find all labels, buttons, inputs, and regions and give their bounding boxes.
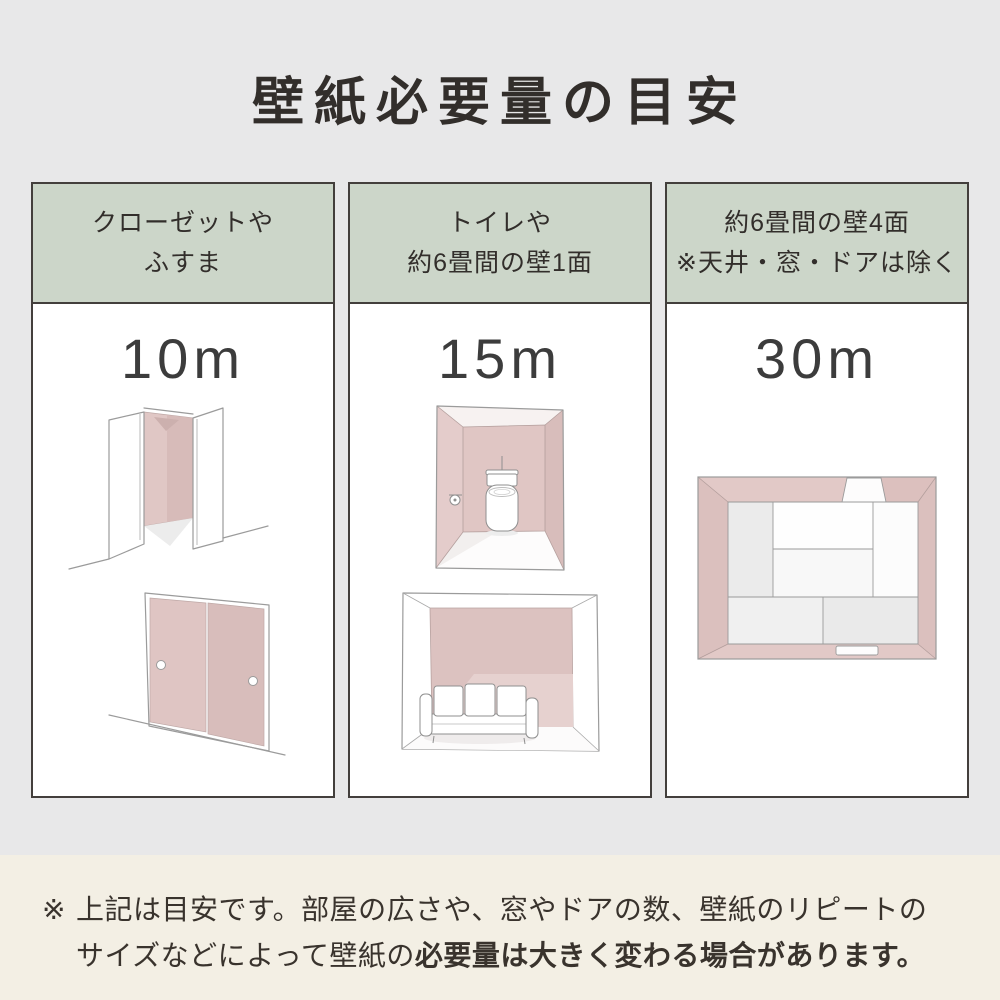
- column-header: トイレや 約6畳間の壁1面: [350, 184, 650, 304]
- note-band: ※ 上記は目安です。部屋の広さや、窓やドアの数、壁紙のリピートのサイズなどによっ…: [0, 855, 1000, 1000]
- fusuma-sliding-doors-illustration: [102, 580, 292, 760]
- header-line-2: ※天井・窓・ドアは除く: [676, 243, 958, 283]
- column-body: 10m: [33, 304, 333, 796]
- header-line-2: ふすま: [144, 243, 222, 283]
- column-toilet-one-wall: トイレや 約6畳間の壁1面 15m: [348, 182, 652, 798]
- note-text: 上記は目安です。部屋の広さや、窓やドアの数、壁紙のリピートのサイズなどによって壁…: [76, 887, 980, 979]
- room-one-accent-wall-sofa-illustration: [400, 590, 600, 754]
- header-line-1: トイレや: [448, 203, 552, 243]
- amount-value: 10m: [121, 328, 245, 390]
- note-mark: ※: [42, 887, 66, 933]
- note-line-2-bold: 必要量は大きく変わる場合があります。: [415, 940, 925, 971]
- amount-value: 30m: [755, 328, 879, 390]
- header-line-1: 約6畳間の壁4面: [724, 203, 910, 243]
- column-header: 約6畳間の壁4面 ※天井・窓・ドアは除く: [667, 184, 967, 304]
- toilet-room-illustration: [435, 404, 565, 572]
- note: ※ 上記は目安です。部屋の広さや、窓やドアの数、壁紙のリピートのサイズなどによっ…: [0, 855, 1000, 979]
- note-line-2-regular: サイズなどによって壁紙の: [76, 940, 415, 971]
- column-body: 15m: [350, 304, 650, 796]
- wallpaper-amount-guide: 壁紙必要量の目安 クローゼットや ふすま 10m: [0, 0, 1000, 1000]
- column-closet-fusuma: クローゼットや ふすま 10m: [31, 182, 335, 798]
- header-line-1: クローゼットや: [92, 203, 274, 243]
- tatami-room-top-view-illustration: [697, 476, 937, 660]
- estimate-table: クローゼットや ふすま 10m: [31, 182, 969, 798]
- amount-value: 15m: [438, 328, 562, 390]
- column-four-walls: 約6畳間の壁4面 ※天井・窓・ドアは除く 30m: [665, 182, 969, 798]
- page-title: 壁紙必要量の目安: [0, 60, 1000, 135]
- note-line-1: 上記は目安です。部屋の広さや、窓やドアの数、壁紙のリピートの: [76, 894, 927, 925]
- closet-open-doors-illustration: [66, 404, 276, 574]
- column-header: クローゼットや ふすま: [33, 184, 333, 304]
- column-body: 30m: [667, 304, 967, 796]
- header-line-2: 約6畳間の壁1面: [407, 243, 593, 283]
